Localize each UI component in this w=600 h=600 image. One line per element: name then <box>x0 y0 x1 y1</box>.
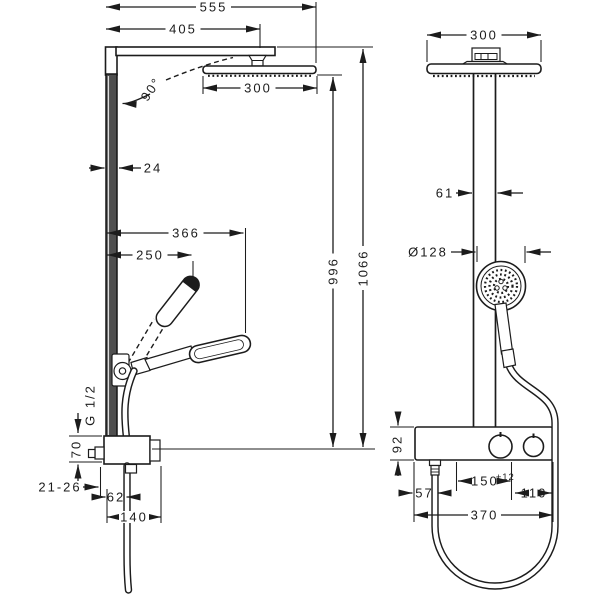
dim-head-width-front-label: 300 <box>470 28 498 43</box>
dim-handshower-diameter-label: Ø128 <box>408 245 448 260</box>
outlet-front <box>430 460 441 475</box>
dim-supply-tolerance-label: ±12 <box>496 472 515 483</box>
front-view: 300 61 Ø128 92 150 <box>390 28 556 587</box>
dim-body-width-label: 370 <box>471 508 499 523</box>
technical-drawing-page: 555 405 300 90° 24 <box>0 0 600 600</box>
dim-head-width-side-label: 300 <box>244 81 272 96</box>
handshower-side <box>131 334 252 375</box>
shower-hose-side-lower <box>127 466 129 590</box>
dim-valve-height-label: 70 <box>69 440 84 458</box>
select-button-side <box>150 440 160 461</box>
shower-arm <box>116 47 275 56</box>
left-side-view: 555 405 300 90° 24 <box>38 0 375 590</box>
dim-bar-depth-label: 24 <box>144 161 162 176</box>
dim-edge-offset-label: 110 <box>521 486 548 501</box>
dim-valve-depth-label: 140 <box>120 510 148 525</box>
dim-height-to-head-label: 996 <box>326 257 341 285</box>
dim-overall-width-label: 555 <box>200 0 228 15</box>
outlet-side <box>95 447 104 459</box>
dim-arm-length-label: 405 <box>169 22 197 37</box>
dim-angle-label: 90° <box>137 74 164 104</box>
dim-thread-label: G 1/2 <box>83 384 98 426</box>
dim-supply-spacing-label: 150 <box>471 474 499 489</box>
dim-pipe-width-label: 61 <box>436 186 454 201</box>
handshower-handle-front <box>495 303 513 354</box>
dim-overall-height-label: 1066 <box>356 250 371 287</box>
overhead-shower-front <box>427 48 541 76</box>
hose-connector-front <box>502 349 516 368</box>
dim-body-height-label: 92 <box>390 435 405 453</box>
overhead-shower-side <box>203 66 316 74</box>
thermostat-side <box>89 436 161 464</box>
dim-outlet-offset-label: 57 <box>415 486 433 501</box>
hose-connector-side <box>126 465 137 474</box>
shower-technical-drawing: 555 405 300 90° 24 <box>0 0 600 600</box>
left-view-dimensions: 555 405 300 90° 24 <box>38 0 375 525</box>
shower-hose-side-upper <box>125 371 134 438</box>
dim-wall-range-label: 21-26 <box>38 480 81 495</box>
dim-handshower-reach-label: 366 <box>172 226 200 241</box>
dim-hose-offset-label: 62 <box>107 490 125 505</box>
dim-handshower-length-label: 250 <box>136 248 164 263</box>
